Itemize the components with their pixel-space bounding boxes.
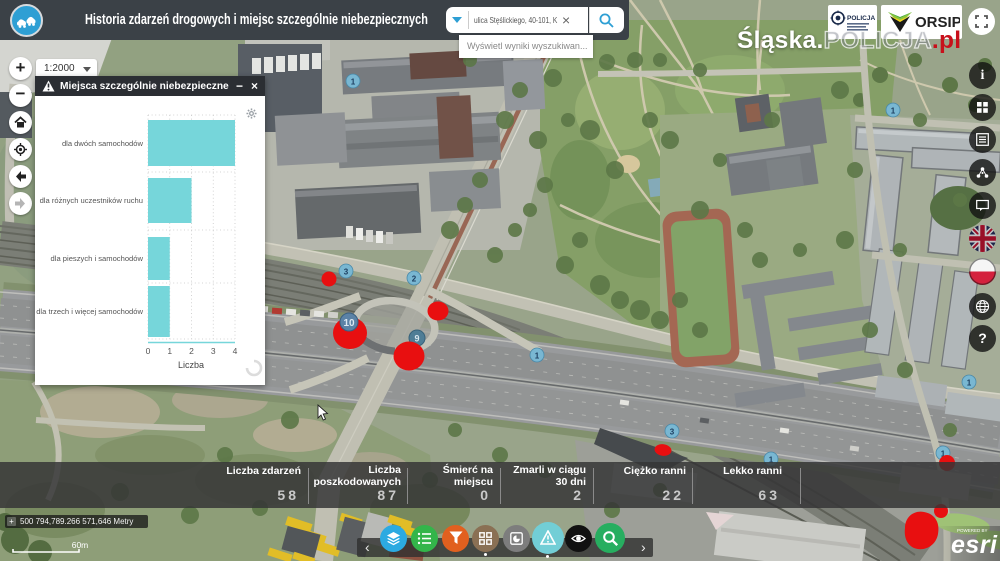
svg-text:dla pieszych i samochodów: dla pieszych i samochodów	[51, 254, 144, 263]
svg-text:1: 1	[891, 107, 896, 116]
svg-text:3: 3	[344, 268, 349, 277]
svg-text:4: 4	[233, 346, 238, 356]
svg-text:dla różnych uczestników ruchu: dla różnych uczestników ruchu	[40, 196, 143, 205]
svg-text:1: 1	[535, 352, 540, 361]
svg-text:1: 1	[167, 346, 172, 356]
svg-text:dla trzech i więcej samochodów: dla trzech i więcej samochodów	[36, 307, 143, 316]
svg-text:2: 2	[189, 346, 194, 356]
svg-text:POLICJA: POLICJA	[847, 15, 875, 22]
svg-text:3: 3	[211, 346, 216, 356]
svg-text:dla dwóch samochodów: dla dwóch samochodów	[62, 139, 144, 148]
svg-text:1: 1	[967, 379, 972, 388]
svg-text:0: 0	[146, 346, 151, 356]
svg-text:60m: 60m	[72, 540, 89, 550]
svg-text:Liczba: Liczba	[178, 360, 204, 370]
svg-text:2: 2	[412, 275, 417, 284]
svg-text:9: 9	[414, 334, 419, 344]
svg-text:10: 10	[343, 318, 355, 329]
svg-text:3: 3	[670, 428, 675, 437]
svg-text:1: 1	[351, 78, 356, 87]
